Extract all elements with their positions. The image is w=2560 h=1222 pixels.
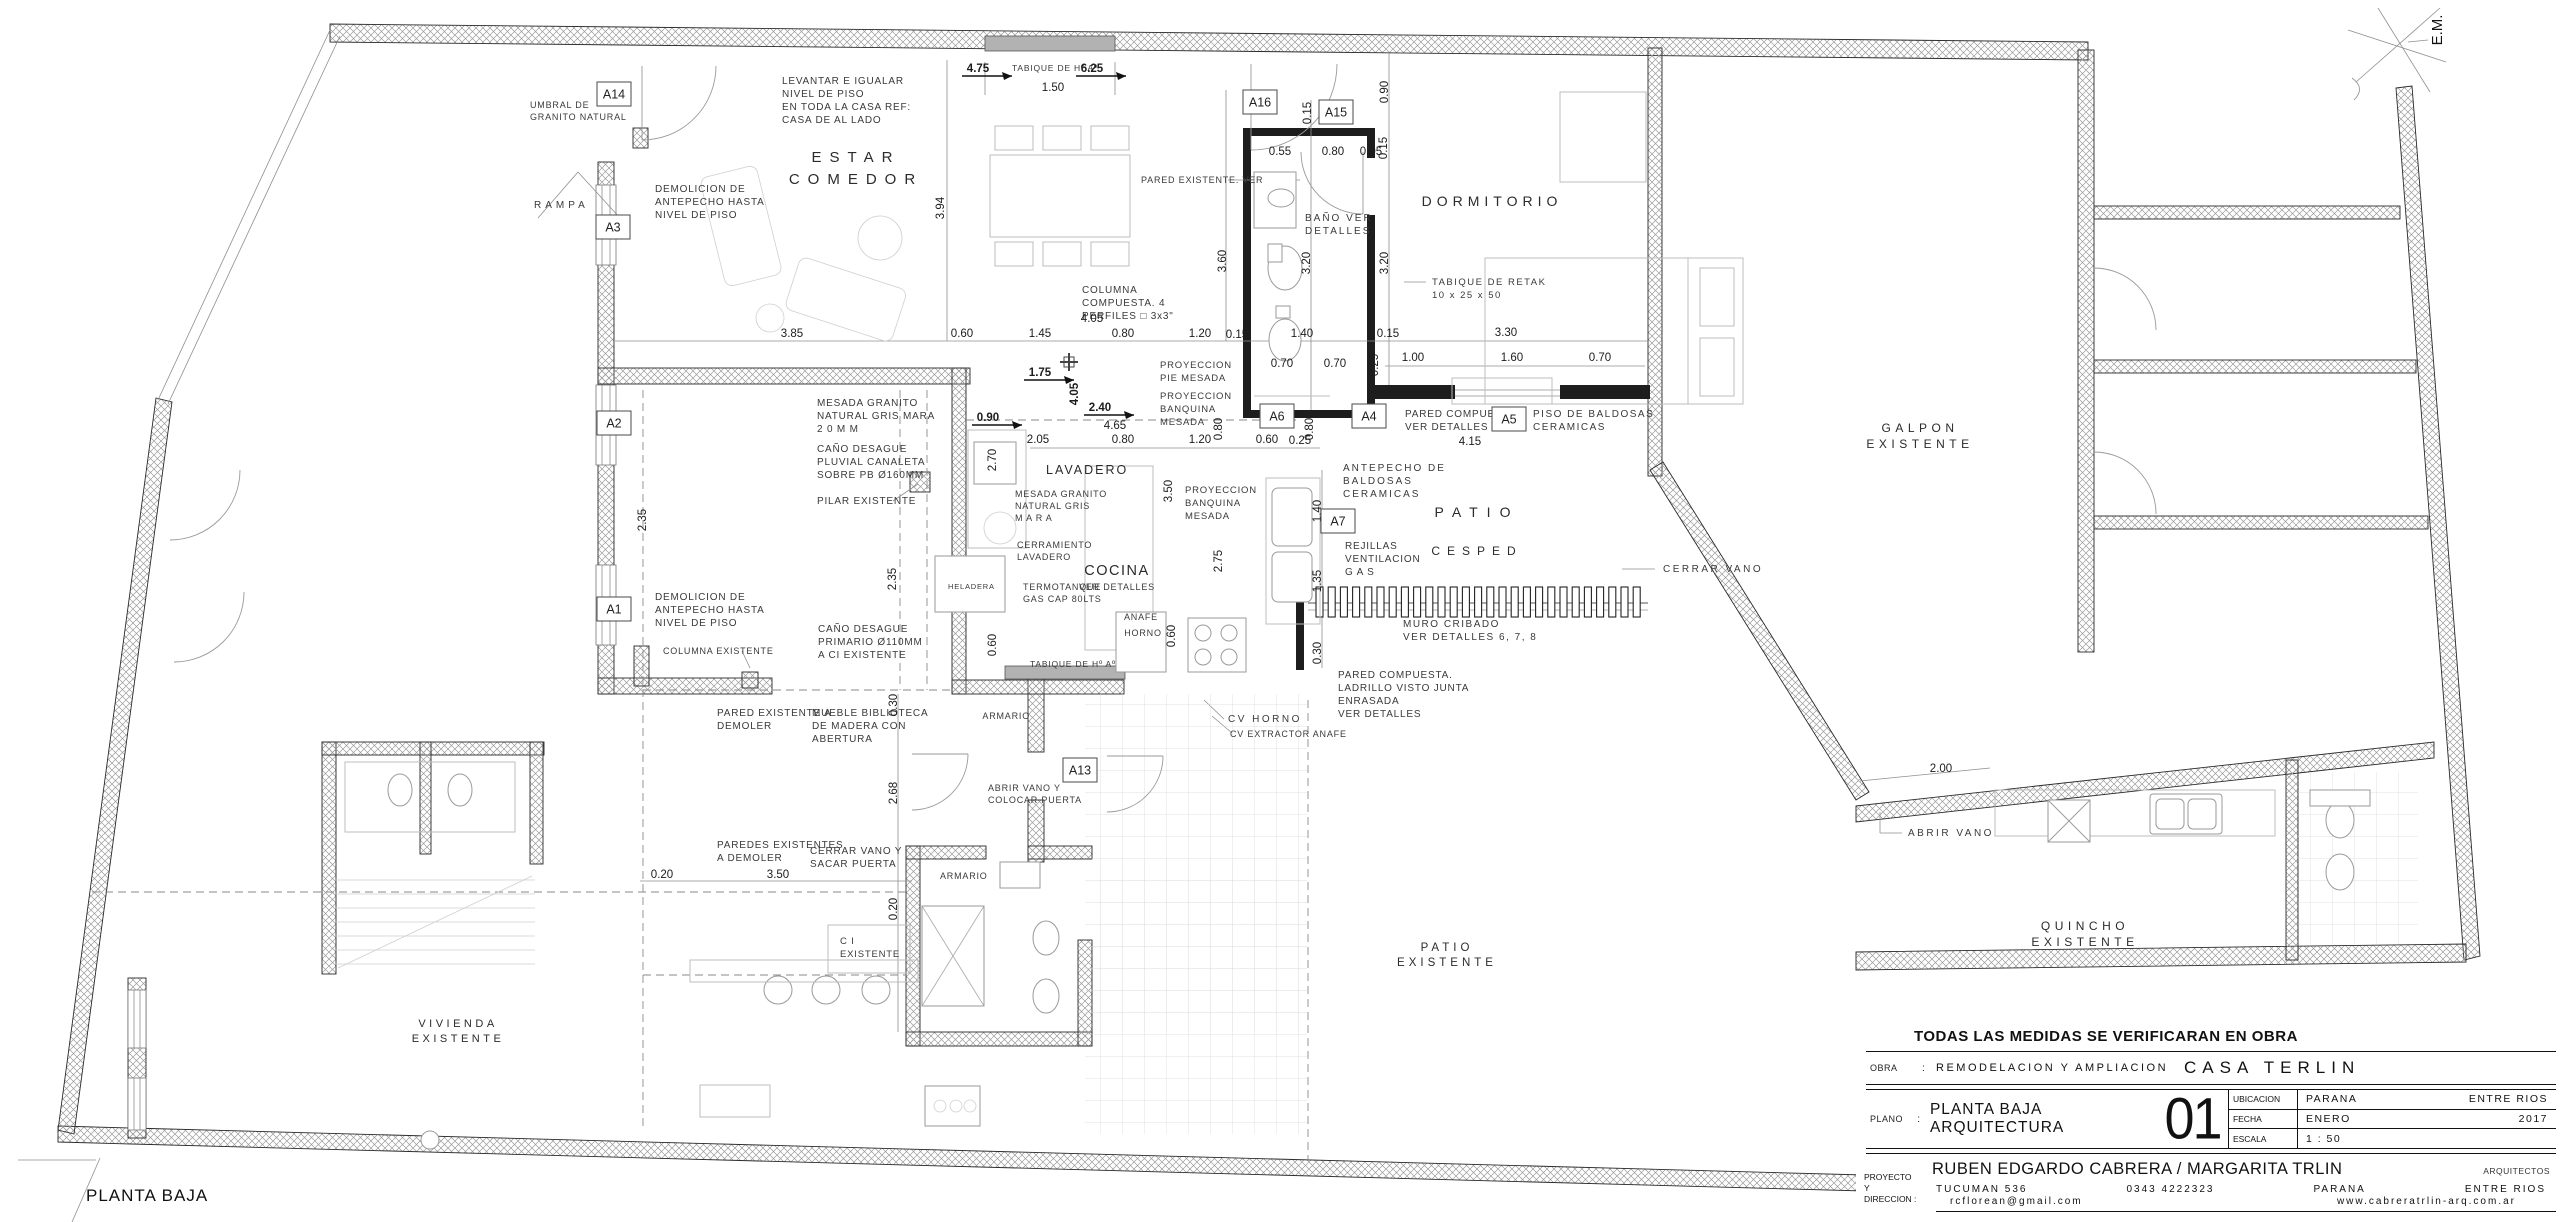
dimension-label: 0.15 [1226,329,1248,341]
dimension-label: 2.05 [1027,434,1049,446]
email: rcflorean@gmail.com [1950,1196,2083,1207]
cribado-tooth [1609,587,1616,617]
annotation-label: C IEXISTENTE [840,936,900,960]
dimension-label: 3.85 [781,328,803,340]
cribado-tooth [1584,587,1591,617]
dimension-label: 4.75 [967,63,990,75]
muro-cribado [1308,587,1648,617]
obra-value: REMODELACION Y AMPLIACION [1936,1062,2168,1074]
dimension-label: 1.20 [1189,328,1211,340]
window-symbols [128,185,616,1130]
annotation-label: REJILLASVENTILACIONG A S [1345,541,1420,578]
cribado-tooth [1401,587,1408,617]
plan-title: PLANTA BAJA [86,1186,208,1206]
annotation-label: MESADA GRANITONATURAL GRIS MARA2 0 M M [817,398,935,435]
cribado-tooth [1621,587,1628,617]
dimension-label: 0.80 [1322,146,1344,158]
annotation-label: BAÑO VERDETALLES [1305,211,1373,237]
address: TUCUMAN 536 [1936,1184,2027,1195]
city: PARANA [2313,1184,2365,1195]
cribado-tooth [1633,587,1640,617]
dimension-label: 1.75 [1029,367,1052,379]
dimension-label: 0.20 [888,898,900,920]
dimension-label: 4.65 [1104,420,1126,432]
dimension-label: 0.55 [1269,146,1291,158]
dimension-label: 0.60 [987,634,999,656]
dimension-label: 3.20 [1379,252,1391,274]
dimension-label: 3.94 [935,196,947,219]
ubicacion-value: PARANA [2306,1093,2357,1105]
dimension-label: 2.70 [987,449,999,471]
escala-label: ESCALA [2229,1129,2298,1148]
website: www.cabreratrlin-arq.com.ar [2337,1196,2516,1207]
cribado-tooth [1389,587,1396,617]
dimension-label: 0.70 [1324,358,1346,370]
annotation-label: VER DETALLES [1079,582,1155,592]
dimension-label: 0.80 [1112,434,1134,446]
ref-tag-label: A3 [605,221,620,235]
sheet-info-table: UBICACION PARANA ENTRE RIOS FECHA ENERO … [2228,1090,2556,1148]
plano-row: PLANO : PLANTA BAJA ARQUITECTURA 01 UBIC… [1856,1090,2556,1148]
dimension-arrowhead [1012,421,1022,429]
dimension-label: 0.60 [951,328,973,340]
dimension-label: 3.30 [1495,327,1517,339]
ref-tag-label: A16 [1249,96,1271,110]
annotation-label: ABRIR VANO YCOLOCAR PUERTA [988,783,1082,805]
cribado-tooth [1426,587,1433,617]
annotation-label: CERRAMIENTOLAVADERO [1017,540,1092,562]
dimension-label: 1.45 [1029,328,1051,340]
ref-tag-label: A15 [1325,106,1347,120]
dimension-label: 1.20 [1189,434,1211,446]
dimension-label: 0.80 [1304,418,1316,440]
annotation-label: PISO DE BALDOSASCERAMICAS [1533,409,1654,433]
architects-title: ARQUITECTOS [2483,1166,2550,1176]
dimension-label: 1.35 [1312,570,1324,592]
cribado-tooth [1340,587,1347,617]
ref-tag-label: A14 [603,88,625,102]
architects-names: RUBEN EDGARDO CABRERA / MARGARITA TRLIN [1932,1160,2483,1179]
dimension-label: 4.05 [1081,313,1103,325]
cribado-tooth [1523,587,1530,617]
dimension-label: 0.90 [1379,81,1391,103]
cribado-tooth [1450,587,1457,617]
dimension-label: 0.70 [1589,352,1611,364]
room-label: LAVADERO [1046,463,1128,477]
annotation-label: TABIQUE DE Hº Aº [1030,659,1116,669]
furniture [335,92,2370,1149]
annotation-label: CAÑO DESAGUEPRIMARIO Ø110MMA CI EXISTENT… [818,622,923,661]
proyecto-label-3: DIRECCION : [1864,1194,1926,1205]
annotation-label: MUEBLE BIBLIOTECADE MADERA CONABERTURA [812,708,928,745]
annotation-label: CERRAR VANO YSACAR PUERTA [810,846,902,870]
annotation-label: DEMOLICION DEANTEPECHO HASTANIVEL DE PIS… [655,592,765,629]
ref-tag-label: A6 [1269,410,1284,424]
annotation-label: CERRAR VANO [1663,564,1763,575]
annotation-label: MURO CRIBADOVER DETALLES 6, 7, 8 [1403,619,1537,643]
fecha-label: FECHA [2229,1110,2298,1129]
dimension-label: 0.15 [1302,102,1314,124]
annotation-label: PROYECCIONPIE MESADA [1160,360,1232,384]
obra-label: OBRA [1870,1063,1922,1073]
annotation-label: LEVANTAR E IGUALARNIVEL DE PISOEN TODA L… [782,76,911,126]
dimension-label: 2.68 [888,782,900,804]
dimension-arrowhead [1124,411,1134,419]
annotation-label: ANTEPECHO DEBALDOSASCERAMICAS [1343,463,1446,500]
cribado-tooth [1328,587,1335,617]
floor-plan-sheet: ESTARCOMEDORDORMITORIOLAVADEROCOCINAPATI… [0,0,2560,1222]
dimension-label: 4.15 [1459,436,1481,448]
ubicacion-region: ENTRE RIOS [2469,1093,2548,1105]
cribado-tooth [1548,587,1555,617]
annotation-label: COLUMNA EXISTENTE [663,646,774,656]
room-label: QUINCHOEXISTENTE [2031,919,2138,949]
annotation-label: DEMOLICION DEANTEPECHO HASTANIVEL DE PIS… [655,184,765,221]
annotation-label: RAMPA [534,200,589,211]
credits-row: PROYECTO Y DIRECCION : RUBEN EDGARDO CAB… [1856,1154,2556,1212]
phone: 0343 4222323 [2126,1184,2214,1195]
obra-row: OBRA : REMODELACION Y AMPLIACION CASA TE… [1856,1052,2556,1084]
sheet-number: 01 [2157,1091,2228,1147]
annotation-label: HELADERA [948,582,995,591]
em-orientation-label: E.M. [2429,15,2446,46]
dimension-label: 3.60 [1217,250,1229,272]
annotation-label: PILAR EXISTENTE [817,496,916,507]
cribado-tooth [1365,587,1372,617]
dimension-label: 0.20 [651,869,673,881]
dimension-label: 0.30 [1312,642,1324,664]
province: ENTRE RIOS [2465,1184,2546,1195]
rampa-boundary [158,30,620,404]
ref-tag-label: A2 [606,417,621,431]
title-block: TODAS LAS MEDIDAS SE VERIFICARAN EN OBRA… [1856,1016,2556,1222]
plano-label: PLANO [1870,1114,1917,1124]
room-label: PATIOEXISTENTE [1397,942,1497,969]
annotation-label: ARMARIO [982,711,1030,721]
ref-tag-label: A7 [1330,515,1345,529]
title-block-note: TODAS LAS MEDIDAS SE VERIFICARAN EN OBRA [1914,1028,2556,1045]
ref-tag-label: A1 [606,603,621,617]
cribado-tooth [1597,587,1604,617]
annotation-label: PARED COMPUESTA.LADRILLO VISTO JUNTAENRA… [1338,670,1469,720]
dimension-label: 0.70 [1271,358,1293,370]
proyecto-label-2: Y [1864,1183,1926,1194]
room-label: DORMITORIO [1422,193,1563,209]
dimension-label: 1.40 [1291,328,1313,340]
dimension-label: 3.50 [767,869,789,881]
annotation-label: ANAFE [1124,612,1158,622]
ubicacion-label: UBICACION [2229,1090,2298,1109]
ref-tag-label: A4 [1361,410,1376,424]
dimension-label: 2.75 [1213,550,1225,572]
room-label: GALPONEXISTENTE [1866,421,1973,451]
cribado-tooth [1560,587,1567,617]
room-label: COCINA [1084,563,1149,579]
dimension-label: 0.25 [1369,354,1381,376]
cribado-tooth [1438,587,1445,617]
dimension-label: 1.00 [1402,352,1424,364]
annotation-label: CAÑO DESAGUEPLUVIAL CANALETASOBRE PB Ø16… [817,442,925,481]
cribado-tooth [1462,587,1469,617]
annotation-label: MESADA GRANITONATURAL GRISM A R A [1015,489,1107,523]
cribado-tooth [1511,587,1518,617]
cribado-tooth [1353,587,1360,617]
dimension-arrowhead [1002,72,1012,80]
ref-tag-label: A13 [1069,764,1091,778]
dimension-label: 3.50 [1163,480,1175,502]
ref-tag-label: A5 [1501,413,1516,427]
dimension-label: 2.00 [1930,763,1952,775]
dimension-arrowhead [1116,72,1126,80]
room-label: CESPED [1431,544,1522,558]
cribado-tooth [1475,587,1482,617]
annotation-label: ABRIR VANO [1908,828,1994,839]
dimension-label: 0.90 [977,412,999,424]
dimension-label: 0.80 [1112,328,1134,340]
dimension-label: 0.15 [1378,137,1390,159]
cribado-tooth [1377,587,1384,617]
cribado-tooth [1414,587,1421,617]
dimension-label: 3.20 [1301,252,1313,274]
proyecto-label-1: PROYECTO [1864,1172,1926,1183]
escala-value: 1 : 50 [2306,1133,2341,1145]
dimension-label: 2.35 [887,568,899,590]
cribado-tooth [1572,587,1579,617]
annotation-label: PROYECCIONBANQUINAMESADA [1185,485,1257,522]
plano-value: PLANTA BAJA ARQUITECTURA [1930,1101,2157,1137]
dimension-label: 4.05 [1069,382,1081,405]
room-label: PATIO [1435,504,1520,520]
dimension-label: 2.35 [637,509,649,531]
annotation-label: CV HORNO [1228,714,1302,725]
dimension-label: 6.25 [1081,63,1104,75]
annotation-label: ARMARIO [940,871,988,881]
dimension-label: 1.50 [1042,82,1064,94]
dimension-label: 0.60 [1166,625,1178,647]
dimension-label: 2.40 [1089,402,1111,414]
project-name: CASA TERLIN [2184,1058,2360,1078]
dimension-label: 0.30 [888,694,900,716]
cribado-tooth [1487,587,1494,617]
annotation-label: PARED EXISTENTE. VER [1141,175,1263,185]
dimension-label: 1.60 [1501,352,1523,364]
room-label: VIVIENDAEXISTENTE [412,1018,505,1045]
room-label: ESTARCOMEDOR [789,149,923,188]
fecha-value: ENERO [2306,1113,2351,1125]
annotation-label: CV EXTRACTOR ANAFE [1230,729,1347,739]
fecha-year: 2017 [2519,1113,2548,1125]
dimension-label: 0.80 [1213,418,1225,440]
cribado-tooth [1499,587,1506,617]
dimension-label: 0.15 [1377,328,1399,340]
cribado-tooth [1536,587,1543,617]
dimension-label: 0.60 [1256,434,1278,446]
annotation-label: HORNO [1124,628,1162,638]
annotation-label: TABIQUE DE RETAK10 x 25 x 50 [1432,277,1546,301]
